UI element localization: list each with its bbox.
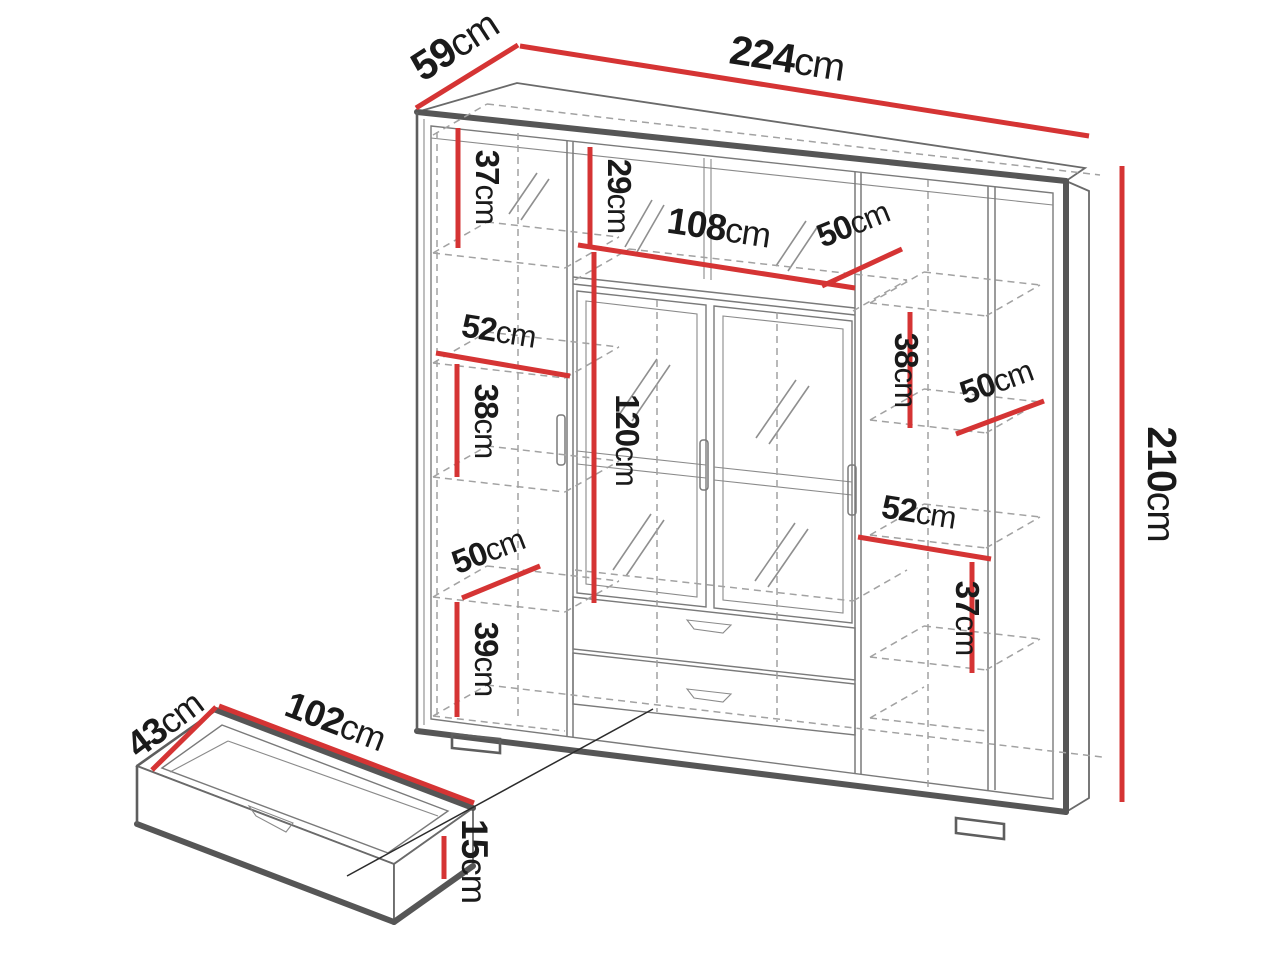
dim-label-drawer-15: 15cm <box>454 819 495 903</box>
drawer-detail <box>137 710 473 922</box>
dim-label-left-38: 38cm <box>468 384 505 459</box>
wardrobe-right-side-panel <box>1066 181 1089 812</box>
dim-label-door-120: 120cm <box>609 394 646 486</box>
dim-label-height-210: 210cm <box>1139 426 1185 541</box>
dim-label-left-37: 37cm <box>469 150 506 225</box>
dim-label-center-29: 29cm <box>601 159 638 234</box>
dim-label-right-38: 38cm <box>888 333 925 408</box>
dim-label-right-37: 37cm <box>949 581 986 656</box>
diagram-canvas: 59cm 224cm 210cm 37cm 29cm 108cm 50cm 52… <box>0 0 1280 960</box>
dim-label-left-39: 39cm <box>468 622 505 697</box>
wardrobe-dimension-diagram: 59cm 224cm 210cm 37cm 29cm 108cm 50cm 52… <box>0 0 1280 960</box>
dim-label-depth-59: 59cm <box>403 1 506 91</box>
wardrobe-foot-right <box>956 818 1004 839</box>
